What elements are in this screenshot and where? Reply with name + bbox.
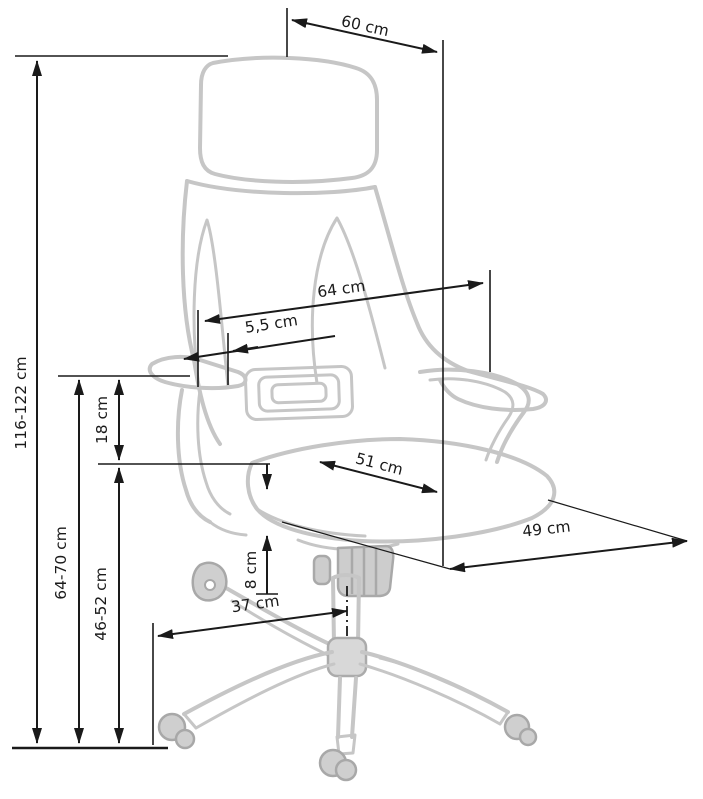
chair-lever xyxy=(314,556,330,584)
dimension-cushion-thickness: 8 cm xyxy=(242,464,267,594)
chair-illustration xyxy=(150,58,555,780)
chair-leg-right xyxy=(362,652,508,712)
chair-leg-left-2 xyxy=(184,664,334,728)
dim-label-46-52cm: 46-52 cm xyxy=(92,567,110,641)
chair-dimension-diagram: 60 cm 116-122 cm 64-70 cm 18 cm 46-52 cm… xyxy=(0,0,703,799)
front-caster-wheel-2 xyxy=(336,760,356,780)
dim-label-8cm: 8 cm xyxy=(242,551,260,589)
dim-label-18cm: 18 cm xyxy=(93,396,111,444)
right-caster-wheel-2 xyxy=(520,729,536,745)
dimension-seat-height: 46-52 cm xyxy=(92,468,119,743)
chair-headrest xyxy=(200,58,377,182)
dimension-overall-height: 116-122 cm xyxy=(12,61,37,743)
chair-armrest-left-foot xyxy=(210,522,246,535)
chair-leg-left xyxy=(184,652,332,714)
dimension-backrest-width: 64 cm xyxy=(205,277,483,321)
dim-label-51cm: 51 cm xyxy=(354,449,405,479)
dimension-height-to-armrest: 64-70 cm xyxy=(52,380,79,743)
dimension-seat-width: 51 cm xyxy=(320,449,437,492)
rear-left-caster-hub xyxy=(205,580,215,590)
dim-label-64cm: 64 cm xyxy=(316,277,366,302)
chair-backrest-left xyxy=(183,181,220,444)
dimension-seat-depth: 49 cm xyxy=(450,517,687,569)
chair-base-hub xyxy=(328,638,366,676)
dim-label-64-70cm: 64-70 cm xyxy=(52,526,70,600)
left-caster-wheel-2 xyxy=(176,730,194,748)
dimension-headrest-width: 60 cm xyxy=(292,12,437,52)
chair-leg-front xyxy=(338,678,356,737)
chair-backrest-right xyxy=(375,187,546,410)
dim-label-116-122cm: 116-122 cm xyxy=(12,356,30,449)
chair-leg-right-2 xyxy=(360,658,508,724)
chair-lumbar-pattern xyxy=(245,366,353,420)
dimension-armrest-pad-height: 18 cm xyxy=(93,380,119,460)
